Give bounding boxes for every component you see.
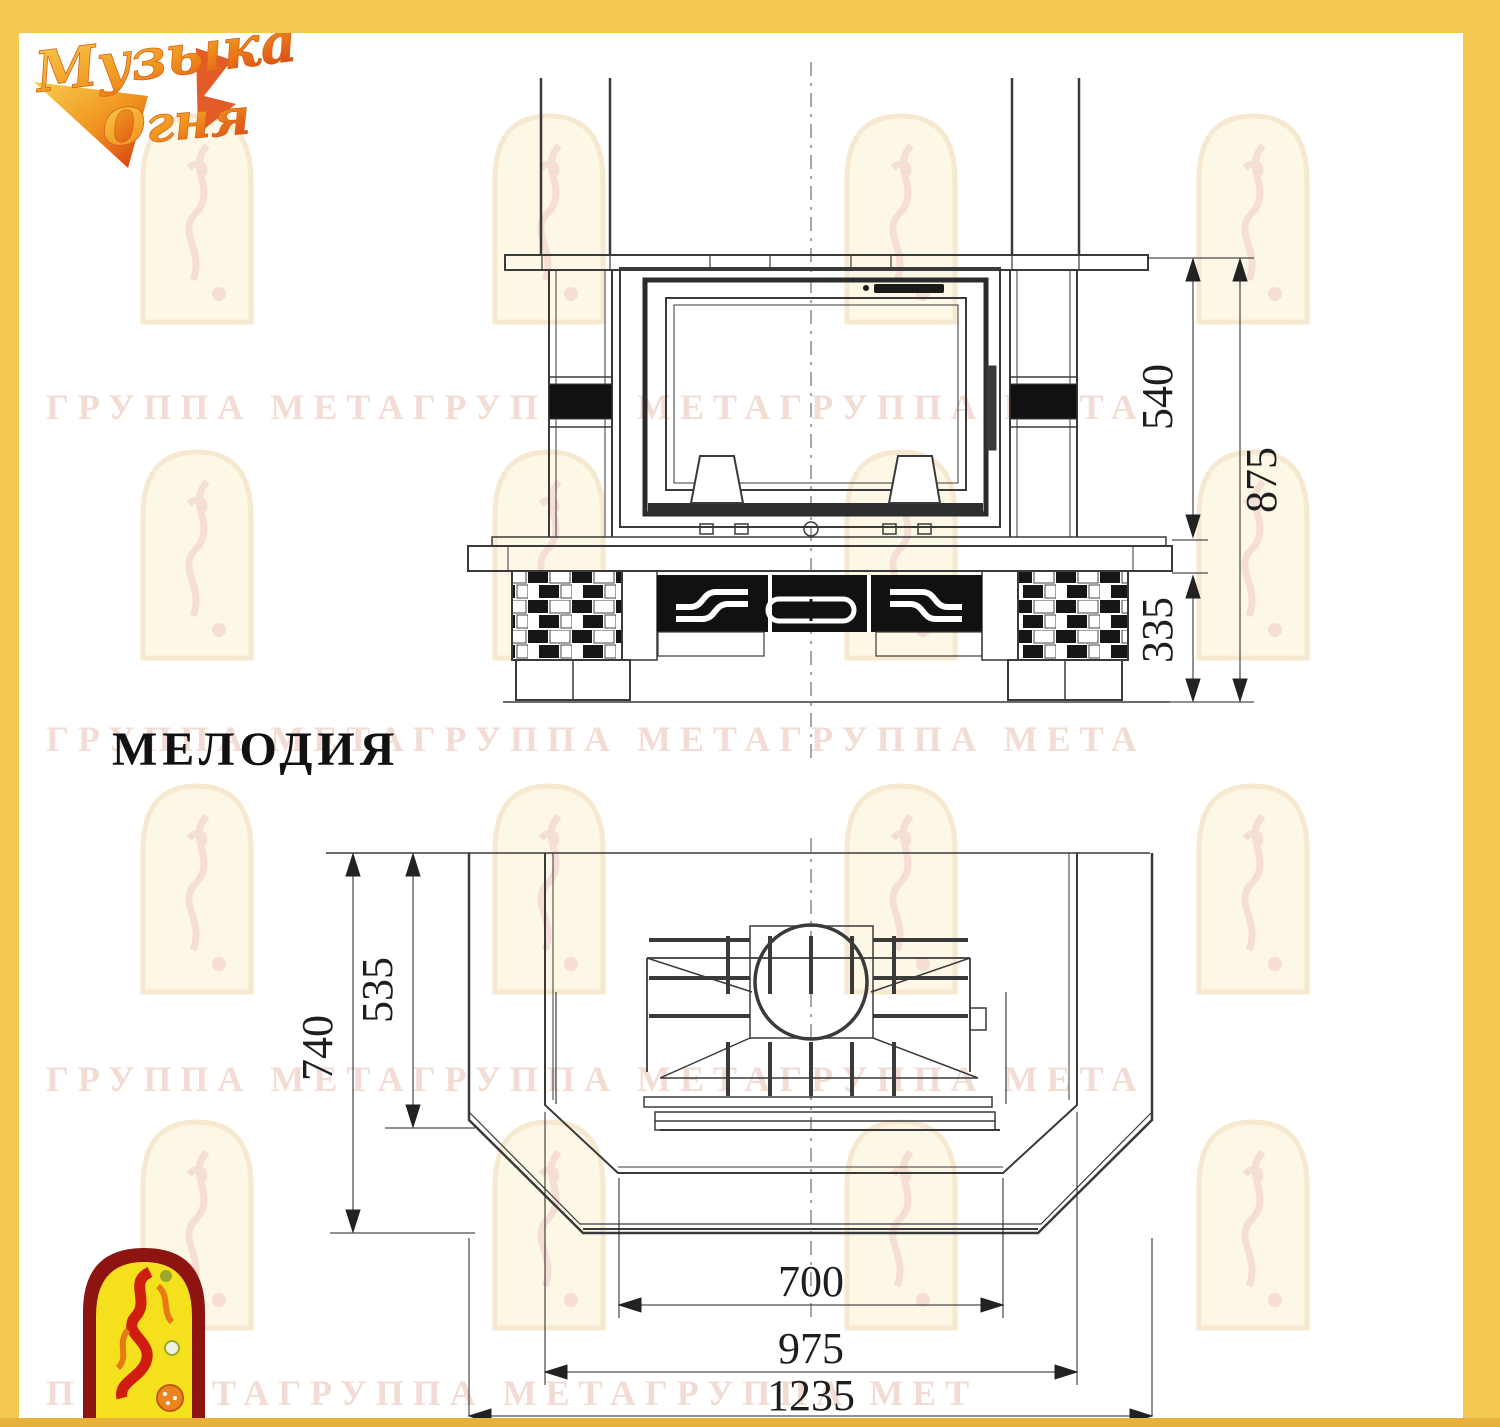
- brick-pillar: [1018, 571, 1128, 660]
- andiron: [691, 456, 743, 503]
- emblem-sun-icon: [157, 1385, 183, 1411]
- firebox: [620, 268, 1000, 536]
- side-tab: [970, 1008, 986, 1030]
- vent-band: [549, 384, 612, 419]
- dim-875-label: 875: [1237, 447, 1286, 513]
- mantel-shelf: [468, 537, 1172, 571]
- front-dimensions: 540 875 335: [1133, 258, 1286, 702]
- technical-drawing: Музыка Огня: [0, 0, 1500, 1427]
- dim-540-label: 540: [1133, 364, 1182, 430]
- grate-bars: [649, 936, 968, 1096]
- brand-logo-line2: Огня: [100, 86, 253, 158]
- dim-740-label: 740: [293, 1015, 342, 1081]
- front-view: [468, 62, 1172, 758]
- left-pillar: [549, 270, 612, 537]
- base: [503, 571, 1170, 702]
- plan-firebox: [644, 925, 1000, 1130]
- model-title: МЕЛОДИЯ: [112, 722, 399, 777]
- vent-band: [1010, 384, 1077, 419]
- brand-plate: [874, 284, 944, 293]
- dim-700-label: 700: [778, 1257, 844, 1306]
- brick-pillar: [512, 571, 622, 660]
- chimney: [541, 78, 1079, 256]
- dim-335-label: 335: [1133, 597, 1182, 663]
- right-pillar: [1010, 270, 1077, 537]
- page-border-left: [0, 0, 19, 1427]
- dim-975-label: 975: [778, 1324, 844, 1373]
- page-border-top: [0, 0, 1500, 33]
- hinge-hardware: [700, 522, 931, 536]
- front-bar: [655, 1112, 995, 1121]
- dim-1235-label: 1235: [767, 1371, 855, 1420]
- andiron: [889, 456, 940, 503]
- page-border-right: [1463, 0, 1500, 1427]
- catalog-page: ГРУППА МЕТАГРУППА МЕТАГРУППА МЕТА ГРУППА…: [0, 0, 1500, 1427]
- front-bar: [644, 1097, 992, 1107]
- page-border-bottom: [0, 1418, 1500, 1427]
- plan-view: [326, 838, 1152, 1322]
- dim-535-label: 535: [353, 957, 402, 1023]
- corner-emblem: [83, 1248, 205, 1420]
- door-sill: [648, 503, 983, 515]
- door-handle: [987, 366, 996, 450]
